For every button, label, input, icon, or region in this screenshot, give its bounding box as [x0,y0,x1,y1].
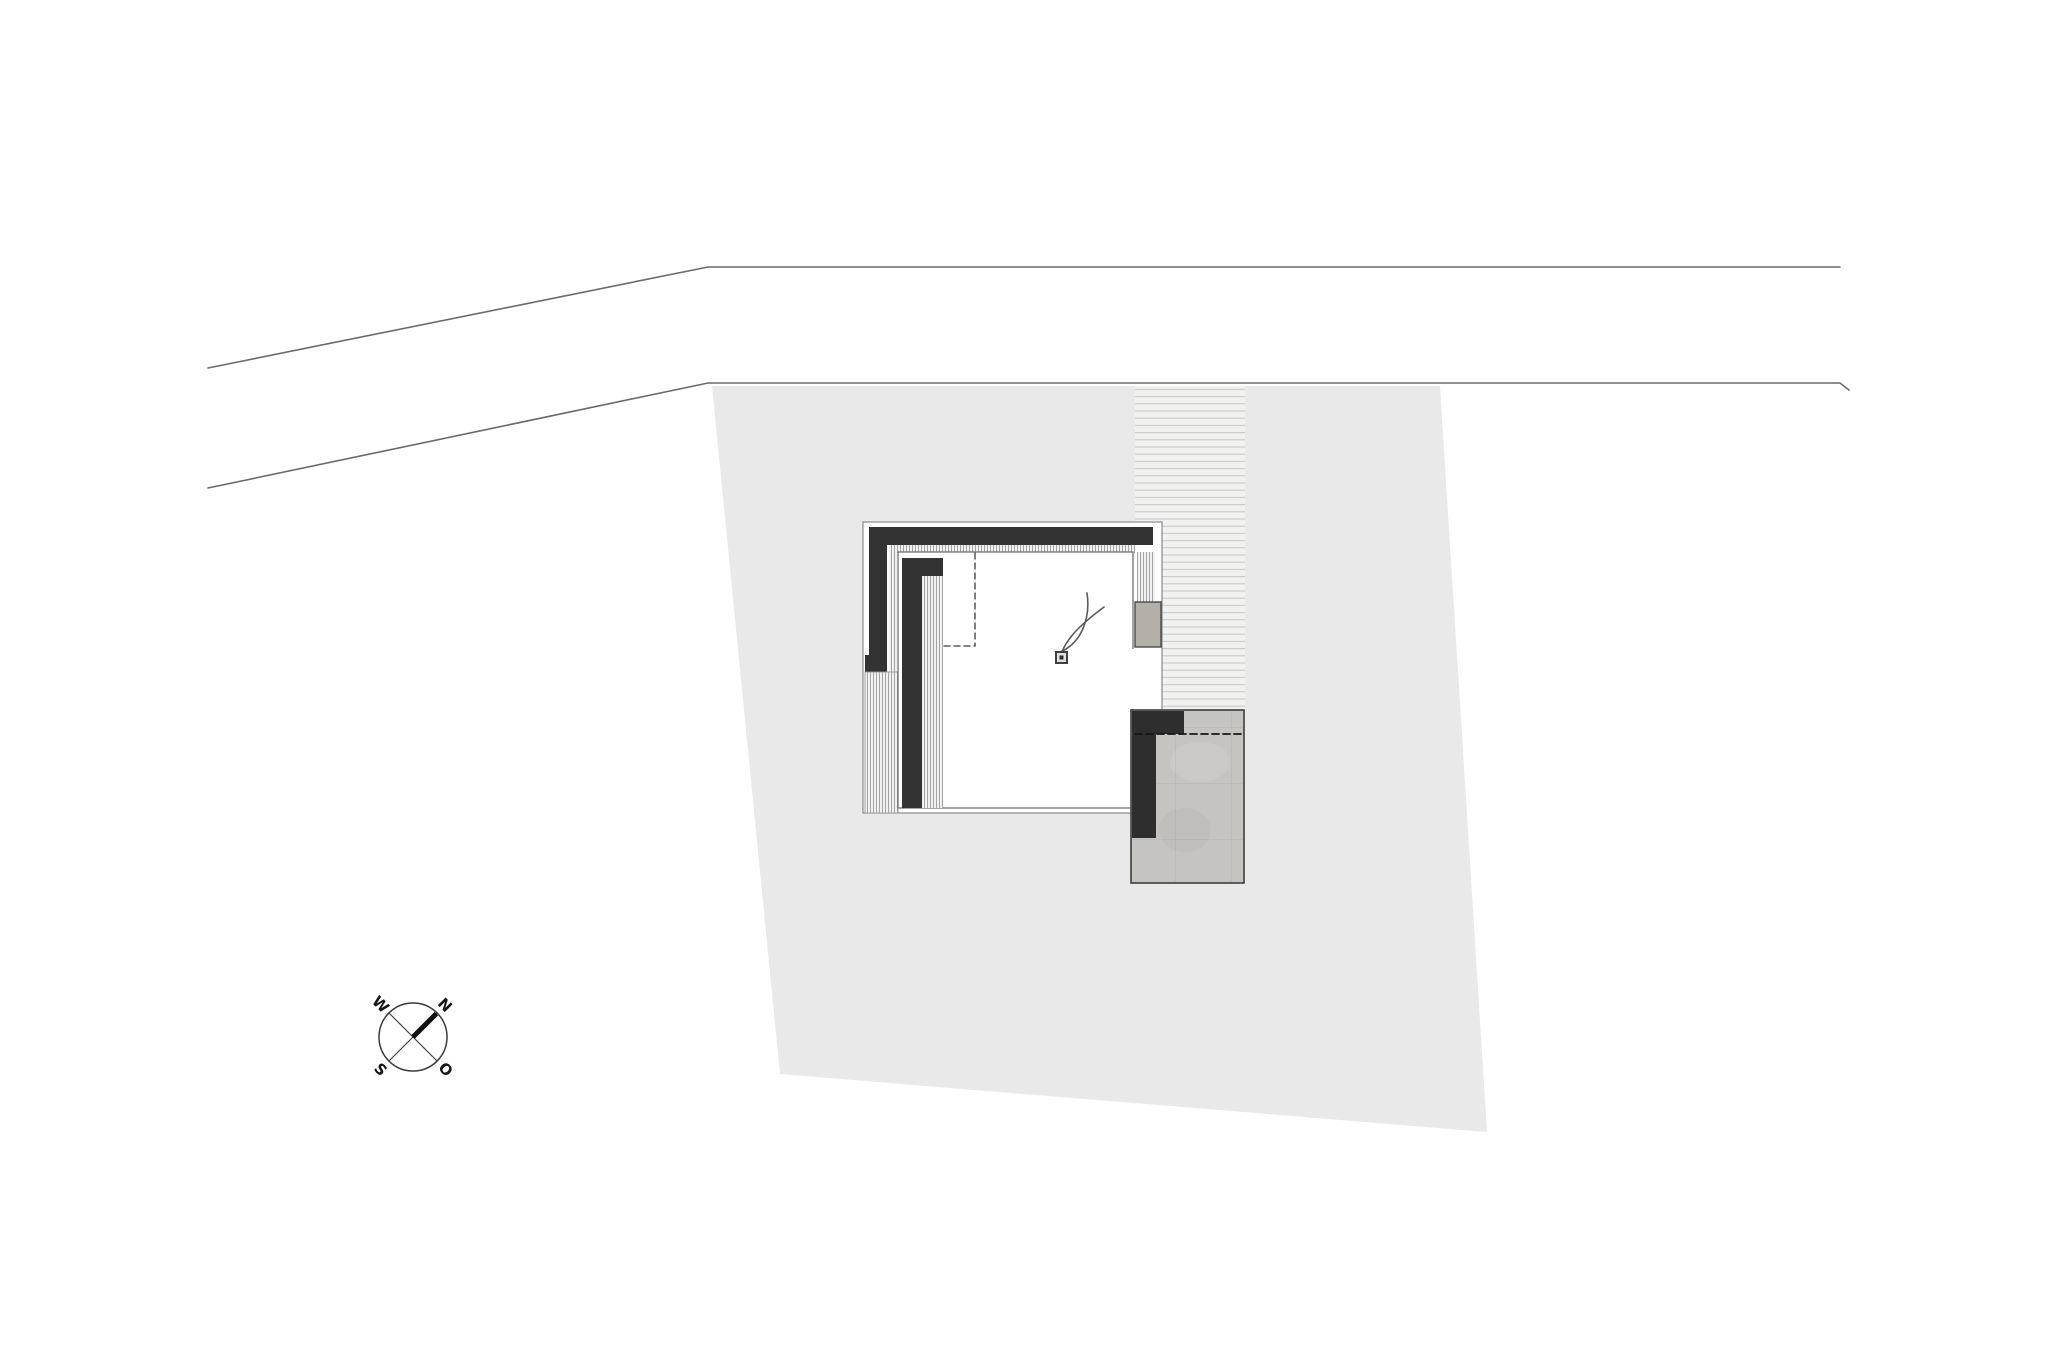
glass-opening [1132,649,1161,709]
room-floor-strip [922,576,943,808]
terrace-mottle-1 [1170,742,1230,782]
room-wall-left [902,558,922,808]
deck-column-left [865,672,898,813]
compass-rose: NSWO [336,960,488,1112]
deck-strip-left [889,553,897,672]
site-plan-canvas: NSWO [0,0,2048,1365]
concrete-block [1135,602,1161,647]
road-edge-upper [208,267,1840,368]
terrace-wall-left [1132,711,1156,838]
compass-north-needle [413,1014,436,1037]
parapet-wall-left [869,527,887,655]
column-marker-dot [1060,656,1064,660]
site-plan-svg: NSWO [0,0,2048,1365]
terrace-mottle-2 [1159,808,1211,852]
parapet-wall-top [869,527,1153,545]
deck-strip-right [1137,552,1155,602]
compass-label-east: O [435,1059,457,1081]
parapet-end-block [865,655,887,672]
compass-label-south: S [370,1059,390,1079]
